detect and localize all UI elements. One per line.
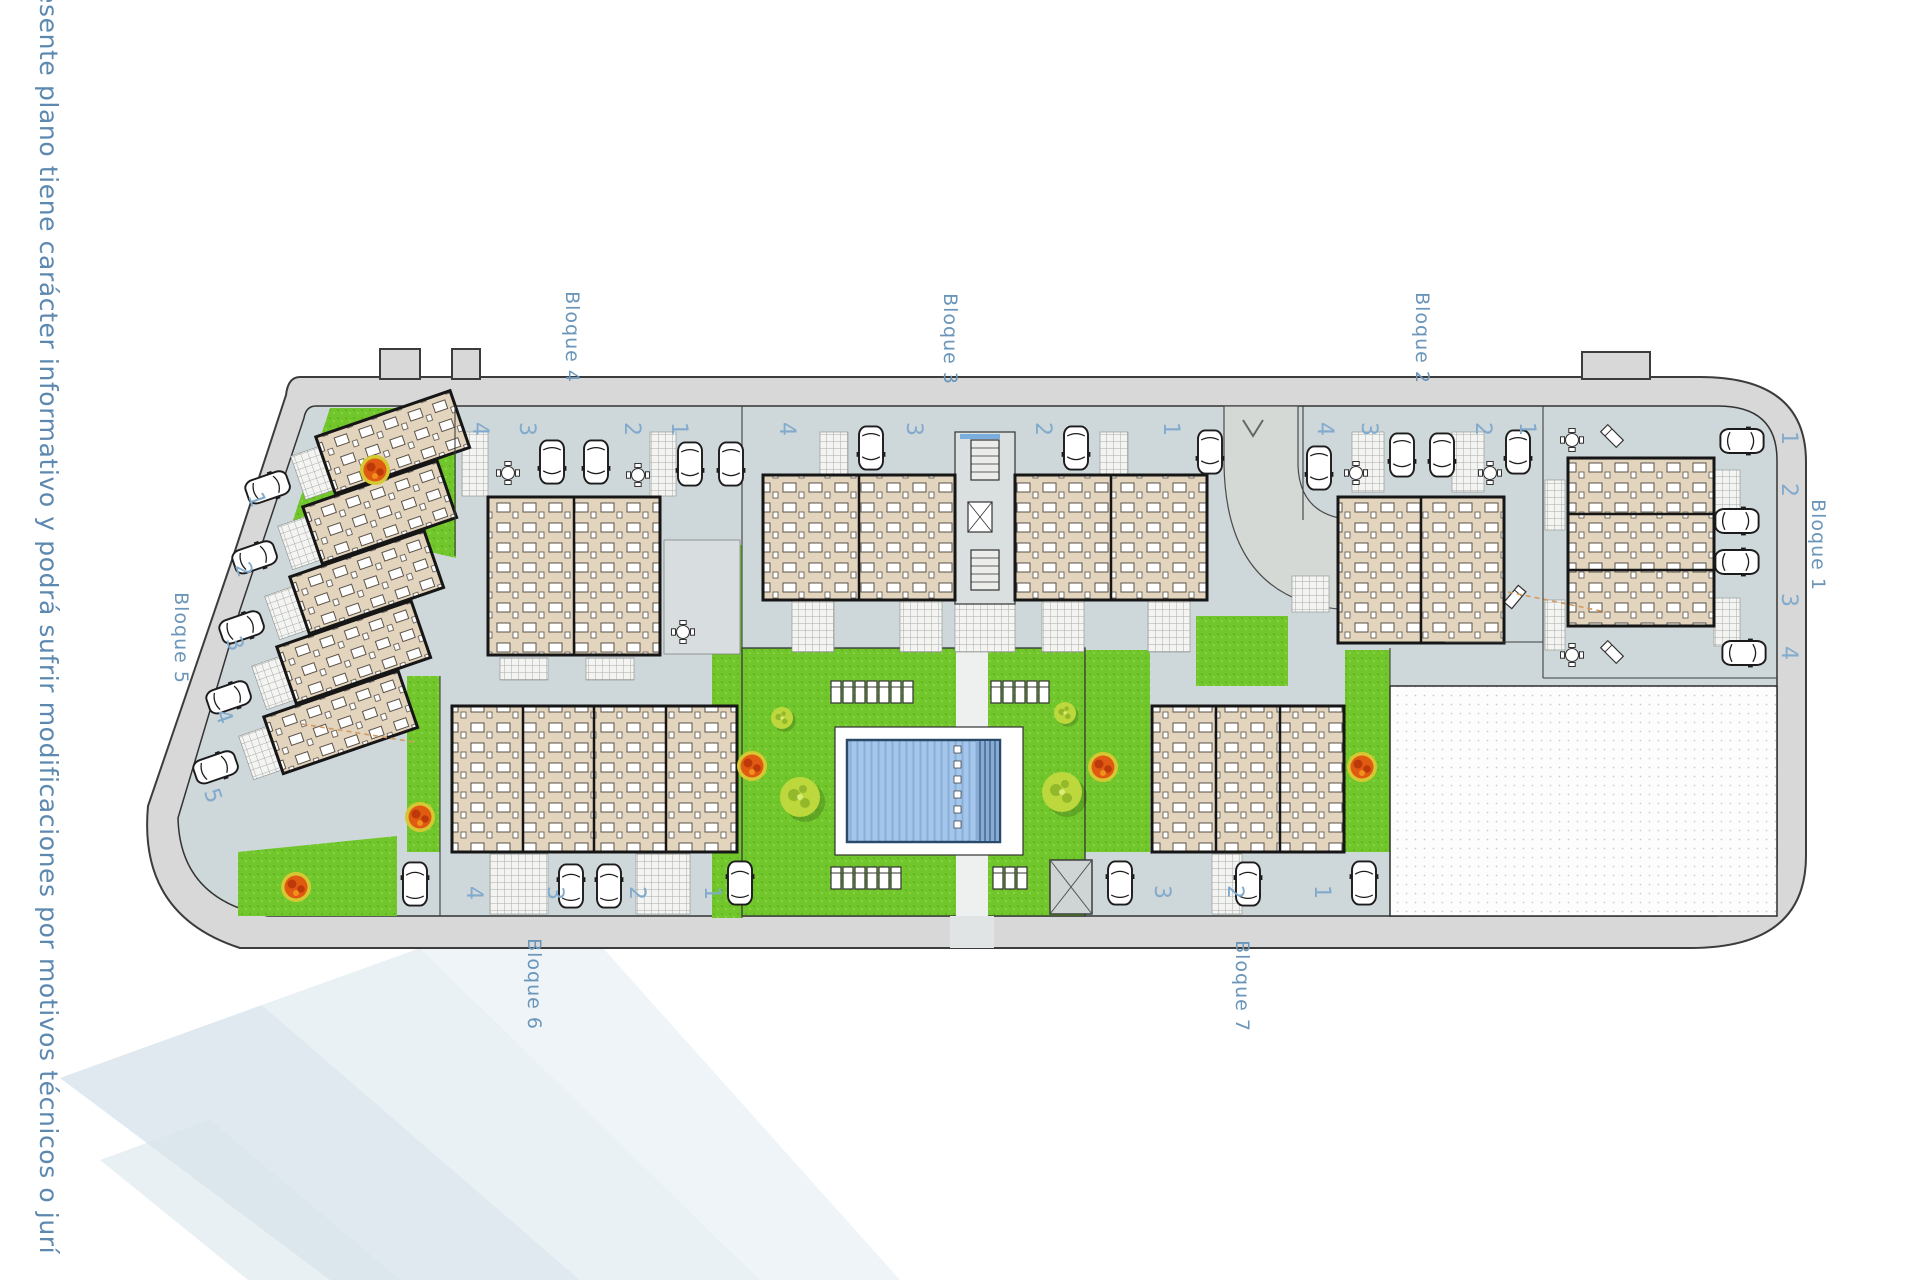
- bloque-4-building: [488, 497, 660, 655]
- terrace: [664, 540, 740, 654]
- car-icon: [582, 440, 611, 483]
- tree-icon: [405, 802, 435, 832]
- car-icon: [1428, 433, 1457, 476]
- stairs-icon: [971, 440, 999, 480]
- car-icon: [1305, 446, 1334, 489]
- unit-number: 1: [666, 422, 691, 436]
- tree-icon: [360, 455, 390, 485]
- car-icon: [1504, 430, 1533, 473]
- unit-number: 4: [774, 422, 799, 436]
- car-icon: [1062, 426, 1091, 469]
- boundary-notch: [380, 349, 420, 379]
- lawn-bloque7-left: [1085, 650, 1150, 852]
- tree-icon: [737, 751, 767, 781]
- sun-lounger-icon: [879, 867, 889, 889]
- car-icon: [857, 426, 886, 469]
- unit-number: 2: [1776, 483, 1801, 497]
- car-icon: [717, 442, 746, 485]
- unit-number: 1: [1514, 422, 1539, 436]
- bloque-1-building: [1568, 458, 1714, 626]
- unit-number: 3: [1149, 885, 1174, 899]
- unit-number: 4: [461, 886, 486, 900]
- lawn-bloque7-right: [1345, 650, 1390, 852]
- sun-lounger-icon: [1017, 867, 1027, 889]
- unit-number: 1: [1776, 431, 1801, 445]
- unit-number: 2: [1470, 422, 1495, 436]
- sun-lounger-icon: [843, 867, 853, 889]
- reserved-plot: [1390, 686, 1777, 916]
- pool-steps: [976, 741, 999, 841]
- sun-lounger-icon: [843, 681, 853, 703]
- courtyard-path: [950, 916, 994, 948]
- sun-lounger-icon: [1005, 867, 1015, 889]
- car-icon: [1106, 861, 1135, 904]
- sun-lounger-icon: [993, 867, 1003, 889]
- site-plan: Bloque 4 Bloque 3 Bloque 2 Bloque 1 Bloq…: [0, 0, 1920, 1280]
- sun-lounger-icon: [831, 681, 841, 703]
- sun-lounger-icon: [855, 681, 865, 703]
- unit-number: 1: [1309, 885, 1334, 899]
- lawn-road-side: [1196, 616, 1288, 686]
- bloque-5-label: Bloque 5: [170, 592, 192, 684]
- unit-number: 3: [901, 422, 926, 436]
- sun-lounger-icon: [991, 681, 1001, 703]
- unit-number: 2: [1222, 885, 1247, 899]
- tree-icon: [1347, 752, 1377, 782]
- courtyard-path: [956, 648, 988, 727]
- unit-number: 3: [542, 886, 567, 900]
- unit-number: 3: [514, 422, 539, 436]
- sun-lounger-icon: [1015, 681, 1025, 703]
- bloque-4-label: Bloque 4: [561, 291, 583, 383]
- sun-lounger-icon: [891, 681, 901, 703]
- car-icon: [1388, 433, 1417, 476]
- sun-lounger-icon: [1027, 681, 1037, 703]
- unit-number: 3: [1356, 422, 1381, 436]
- car-icon: [1715, 548, 1758, 577]
- car-icon: [726, 861, 755, 904]
- bloque-2-building: [1338, 497, 1504, 643]
- car-icon: [1350, 861, 1379, 904]
- bloque-3-label: Bloque 3: [939, 293, 961, 385]
- tree-icon: [281, 872, 311, 902]
- unit-number: 1: [699, 886, 724, 900]
- sun-lounger-icon: [855, 867, 865, 889]
- unit-number: 2: [1030, 422, 1055, 436]
- car-icon: [595, 864, 624, 907]
- car-icon: [1196, 430, 1225, 473]
- car-icon: [538, 440, 567, 483]
- courtyard-path: [956, 855, 988, 916]
- boundary-notch: [1582, 352, 1650, 379]
- technical-shed: [1050, 860, 1092, 914]
- unit-number: 1: [1158, 422, 1183, 436]
- sun-lounger-icon: [867, 681, 877, 703]
- bloque-6-building: [452, 706, 737, 852]
- sun-lounger-icon: [867, 867, 877, 889]
- stairs-icon: [971, 550, 999, 590]
- sun-lounger-icon: [1039, 681, 1049, 703]
- car-icon: [676, 442, 705, 485]
- unit-number: 2: [619, 422, 644, 436]
- car-icon: [1720, 427, 1763, 456]
- bloque-7-label: Bloque 7: [1231, 940, 1253, 1032]
- unit-number: 4: [1776, 646, 1801, 660]
- bloque-2-label: Bloque 2: [1411, 292, 1433, 384]
- unit-number: 4: [1312, 422, 1337, 436]
- sun-lounger-icon: [1003, 681, 1013, 703]
- boundary-notch: [452, 349, 480, 379]
- page: esente plano tiene carácter informativo …: [0, 0, 1920, 1280]
- car-icon: [1234, 862, 1263, 905]
- car-icon: [1722, 639, 1765, 668]
- unit-number: 3: [1776, 593, 1801, 607]
- bloque-7-building: [1152, 706, 1344, 852]
- bloque-1-label: Bloque 1: [1807, 499, 1829, 591]
- sun-lounger-icon: [891, 867, 901, 889]
- unit-number: 2: [624, 886, 649, 900]
- sun-lounger-icon: [831, 867, 841, 889]
- watermark-shapes: [60, 900, 900, 1280]
- bloque-6-label: Bloque 6: [523, 938, 545, 1030]
- car-icon: [401, 862, 430, 905]
- sun-lounger-icon: [903, 681, 913, 703]
- unit-number: 4: [467, 422, 492, 436]
- car-icon: [1715, 507, 1758, 536]
- tree-icon: [1088, 752, 1118, 782]
- sun-lounger-icon: [879, 681, 889, 703]
